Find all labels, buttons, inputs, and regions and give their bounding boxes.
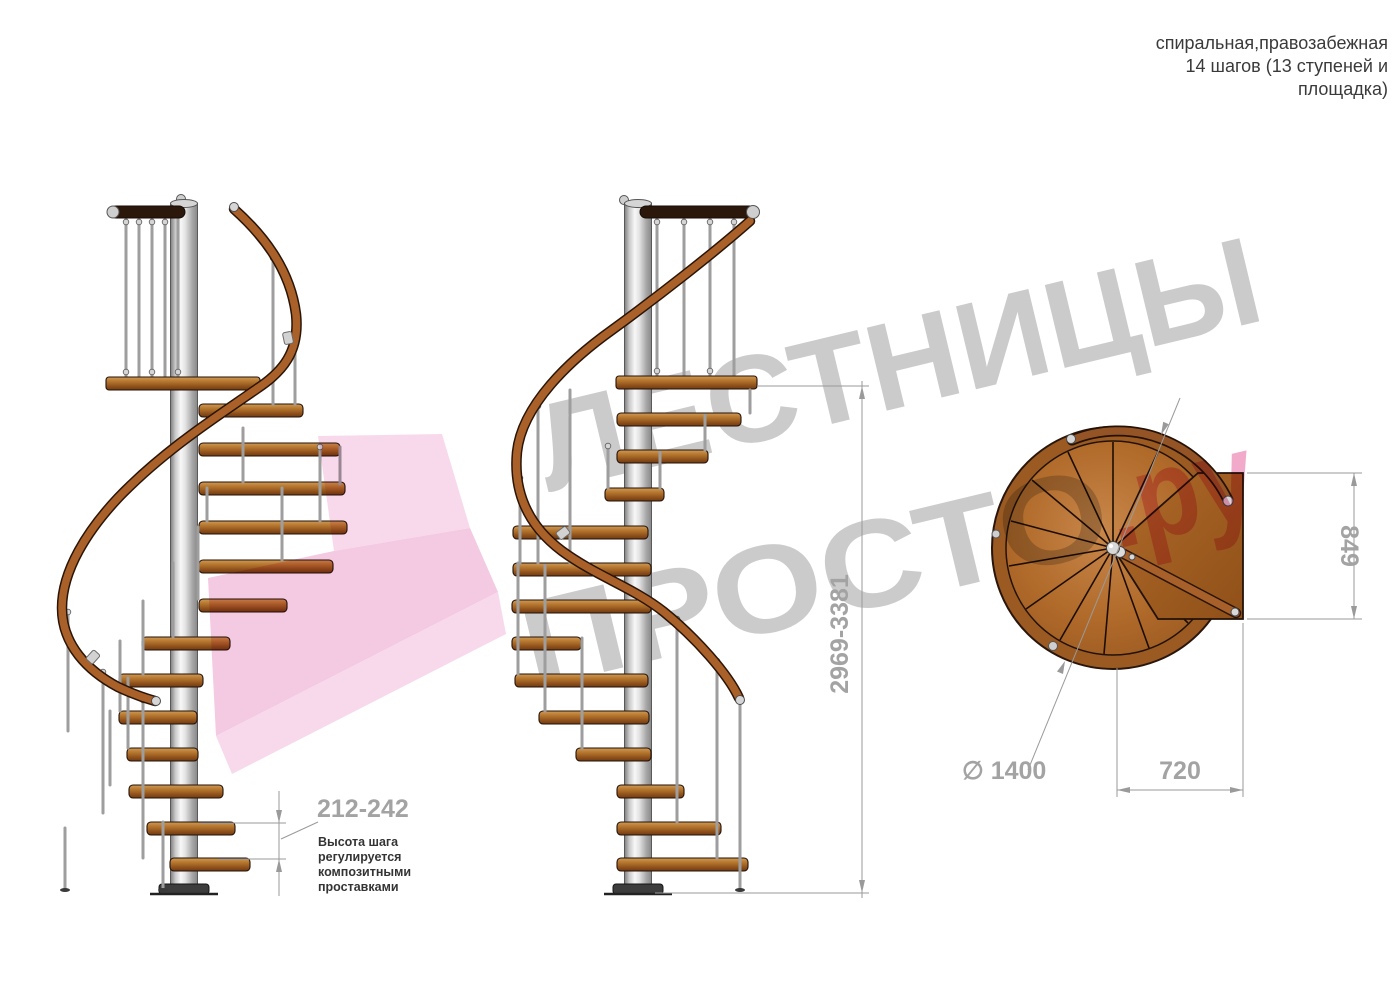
rod-foot — [60, 888, 70, 892]
platform-top-rail — [110, 206, 185, 218]
handrail-cap — [1231, 608, 1239, 616]
drawing-page: ЛЕСТНИЦЫ ПРОСТО.ру — [0, 0, 1400, 1000]
arrow-diameter-lower — [1057, 661, 1065, 674]
dim-platform-width-label: 720 — [1159, 757, 1201, 785]
dim-step-height — [200, 791, 318, 896]
top-platform-board — [616, 376, 757, 389]
arrow-up — [1351, 473, 1357, 486]
dim-platform-depth-label: 849 — [1335, 525, 1363, 567]
arrow-down — [859, 880, 865, 893]
side-view-left — [60, 195, 347, 895]
rail-end-ball — [107, 206, 119, 218]
handrail-top-cap — [230, 203, 239, 212]
title-line-3: площадка) — [1298, 79, 1388, 99]
handrail-bottom-cap — [152, 697, 161, 706]
baluster-top-ball — [1067, 435, 1076, 444]
arrow-down — [276, 810, 282, 823]
spiral-staircase-drawing: ЛЕСТНИЦЫ ПРОСТО.ру — [0, 0, 1400, 1000]
note-line-1: Высота шага — [318, 835, 399, 849]
handrail-bottom-cap — [736, 696, 745, 705]
note-line-4: проставками — [318, 880, 399, 894]
rod-foot — [735, 888, 745, 892]
note-line-3: композитными — [318, 865, 411, 879]
dim-diameter-label: ∅ 1400 — [962, 757, 1046, 785]
arrow-left — [1117, 787, 1130, 793]
rail-end-ball — [747, 206, 760, 219]
title-line-2: 14 шагов (13 ступеней и — [1186, 56, 1389, 76]
baluster-top-ball — [1049, 642, 1058, 651]
handrail-sleeve — [282, 331, 293, 345]
rod-foot — [158, 888, 168, 892]
arrow-down — [1351, 606, 1357, 619]
step-height-note: Высота шага регулируется композитными пр… — [318, 835, 411, 894]
arrow-right — [1230, 787, 1243, 793]
arrow-up — [276, 859, 282, 872]
note-line-2: регулируется — [318, 850, 401, 864]
title-block: спиральная,правозабежная 14 шагов (13 ст… — [1156, 33, 1388, 99]
dim-step-height-label: 212-242 — [317, 795, 409, 823]
top-platform-board — [106, 377, 260, 390]
title-line-1: спиральная,правозабежная — [1156, 33, 1388, 53]
dim-total-height-label: 2969-3381 — [826, 574, 854, 694]
platform-top-rail — [640, 206, 757, 218]
